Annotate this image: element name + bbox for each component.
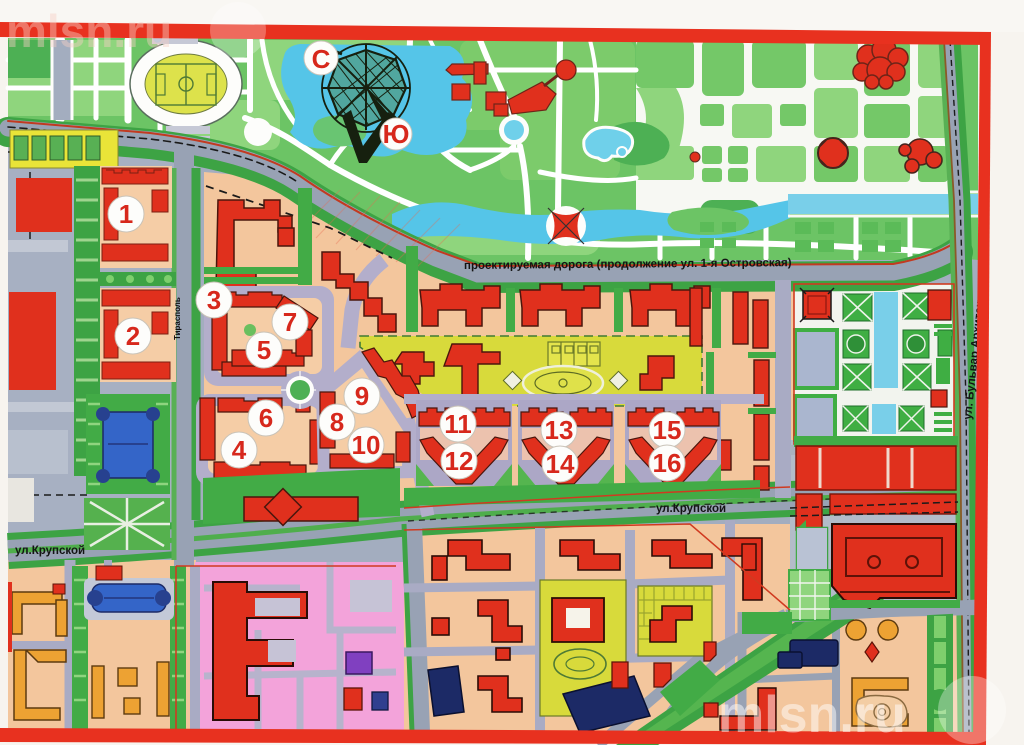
svg-text:2: 2 xyxy=(126,321,140,351)
svg-text:mlsn.ru: mlsn.ru xyxy=(718,686,906,744)
svg-text:9: 9 xyxy=(355,381,369,411)
svg-text:Тирасполь: Тирасполь xyxy=(173,297,182,340)
svg-text:mlsn.ru: mlsn.ru xyxy=(6,5,172,57)
svg-text:8: 8 xyxy=(330,407,344,437)
svg-text:16: 16 xyxy=(653,448,682,478)
svg-text:14: 14 xyxy=(546,449,575,479)
svg-text:ул.Крупской: ул.Крупской xyxy=(656,503,726,515)
svg-text:10: 10 xyxy=(352,430,381,460)
svg-text:7: 7 xyxy=(283,307,297,337)
svg-text:1: 1 xyxy=(119,199,133,229)
svg-text:ул.Крупской: ул.Крупской xyxy=(15,545,85,557)
svg-text:6: 6 xyxy=(259,403,273,433)
svg-text:С: С xyxy=(312,44,331,74)
svg-text:Ю: Ю xyxy=(383,119,410,149)
svg-text:11: 11 xyxy=(444,409,472,439)
svg-text:5: 5 xyxy=(257,335,271,365)
svg-text:12: 12 xyxy=(445,446,474,476)
svg-text:3: 3 xyxy=(207,285,221,315)
svg-text:15: 15 xyxy=(653,415,682,445)
svg-text:13: 13 xyxy=(545,415,574,445)
svg-text:4: 4 xyxy=(232,435,247,465)
